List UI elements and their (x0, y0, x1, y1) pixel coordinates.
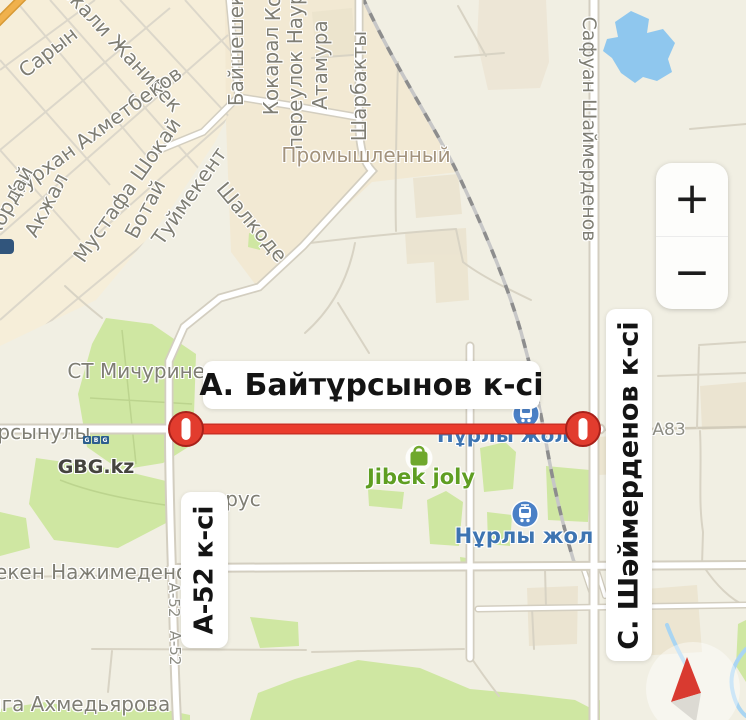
road-banner-baytursynov-label: А. Байтұрсынов к-сі (199, 368, 543, 403)
road-closure-icon-right (566, 412, 600, 446)
road-banner-shaymerdenov-label: С. Шәймерденов к-сі (614, 321, 645, 649)
road-banner-a52: А-52 к-сі (181, 492, 228, 648)
road-closure-icon-left (169, 412, 203, 446)
compass-icon[interactable] (646, 642, 740, 720)
road-banner-a52-label: А-52 к-сі (190, 506, 220, 635)
road-banner-baytursynov: А. Байтұрсынов к-сі (203, 361, 540, 409)
zoom-control: + − (656, 163, 728, 309)
map-canvas[interactable]: Сарынекали ЖанибекНурхан АхметбековКорда… (0, 0, 746, 720)
zoom-out-button[interactable]: − (656, 237, 728, 310)
road-banner-shaymerdenov: С. Шәймерденов к-сі (606, 309, 652, 661)
zoom-in-button[interactable]: + (656, 163, 728, 237)
